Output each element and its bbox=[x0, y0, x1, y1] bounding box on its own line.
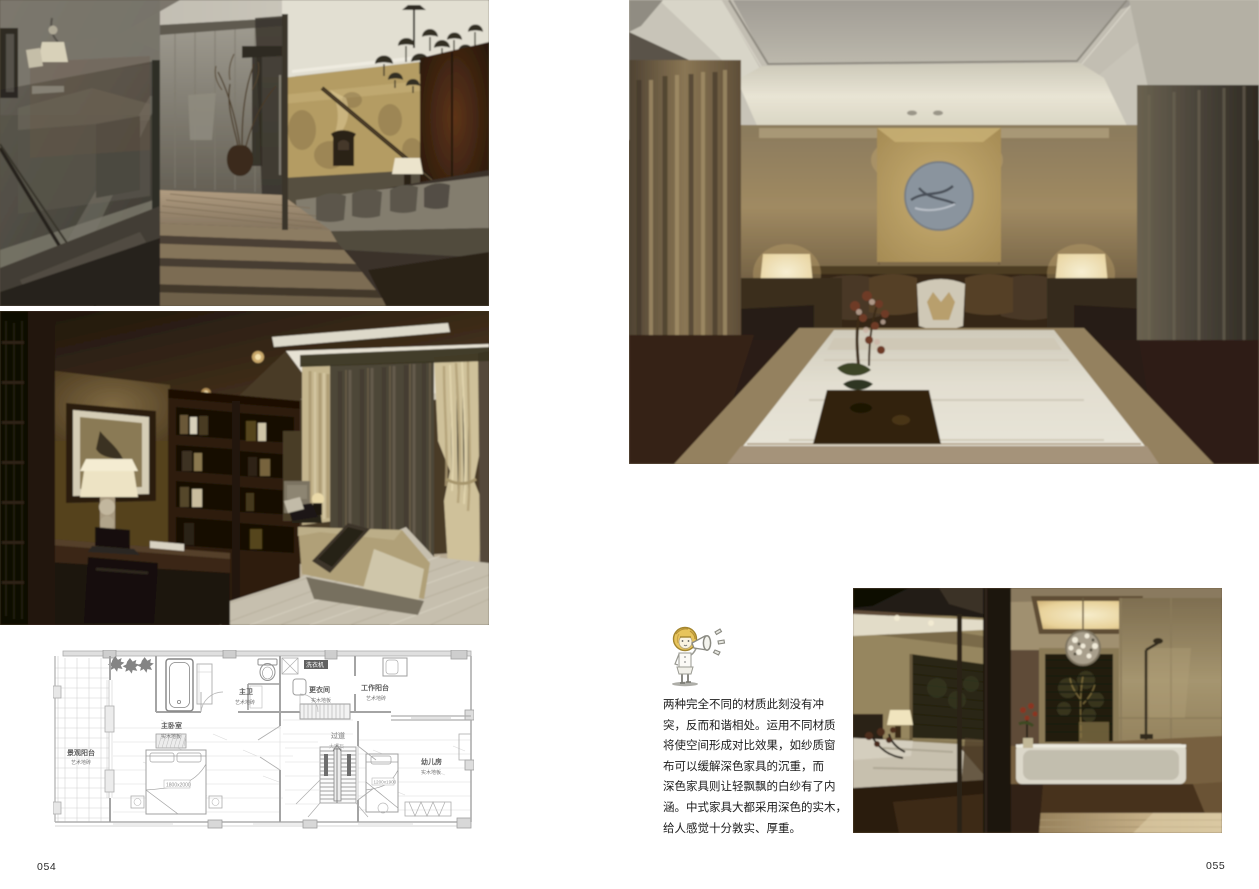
svg-text:工作阳台: 工作阳台 bbox=[361, 683, 389, 692]
svg-text:更衣间: 更衣间 bbox=[309, 685, 330, 694]
svg-text:1200x1900: 1200x1900 bbox=[374, 780, 397, 785]
svg-text:幼儿房: 幼儿房 bbox=[421, 757, 442, 766]
svg-text:过道: 过道 bbox=[331, 731, 345, 740]
svg-text:主卫: 主卫 bbox=[239, 687, 253, 696]
svg-text:实木地板: 实木地板 bbox=[161, 733, 181, 740]
svg-text:实木地板: 实木地板 bbox=[311, 697, 331, 704]
svg-text:1800x2000: 1800x2000 bbox=[166, 783, 191, 789]
svg-text:洗衣机: 洗衣机 bbox=[306, 661, 324, 669]
svg-text:艺术地砖: 艺术地砖 bbox=[71, 759, 91, 766]
svg-text:实木地板: 实木地板 bbox=[421, 769, 441, 776]
svg-text:艺术地砖: 艺术地砖 bbox=[366, 695, 386, 702]
svg-text:艺术地砖: 艺术地砖 bbox=[235, 699, 255, 706]
svg-text:大理石: 大理石 bbox=[329, 743, 344, 750]
svg-text:主卧室: 主卧室 bbox=[161, 721, 182, 730]
svg-text:景观阳台: 景观阳台 bbox=[66, 748, 95, 757]
